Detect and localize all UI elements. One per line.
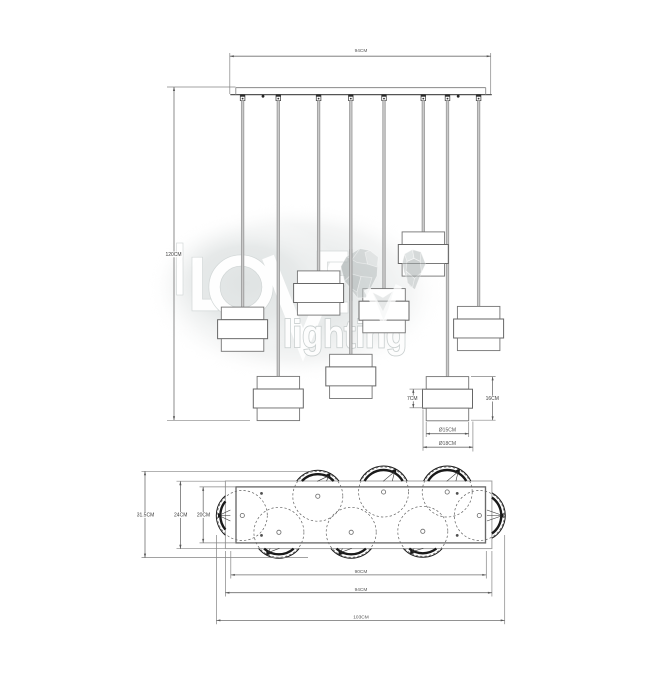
svg-text:24CM: 24CM	[174, 512, 187, 518]
svg-text:20CM: 20CM	[197, 512, 210, 518]
svg-text:7CM: 7CM	[407, 396, 418, 402]
svg-text:Ø15CM: Ø15CM	[439, 427, 456, 433]
svg-text:Ø18CM: Ø18CM	[439, 441, 456, 447]
svg-text:94CM: 94CM	[355, 587, 368, 593]
svg-text:90CM: 90CM	[355, 569, 368, 575]
svg-text:94CM: 94CM	[355, 48, 368, 54]
svg-text:103CM: 103CM	[353, 615, 368, 621]
svg-text:31.5CM: 31.5CM	[137, 512, 155, 518]
svg-text:16CM: 16CM	[486, 396, 499, 402]
svg-text:120CM: 120CM	[165, 252, 181, 258]
